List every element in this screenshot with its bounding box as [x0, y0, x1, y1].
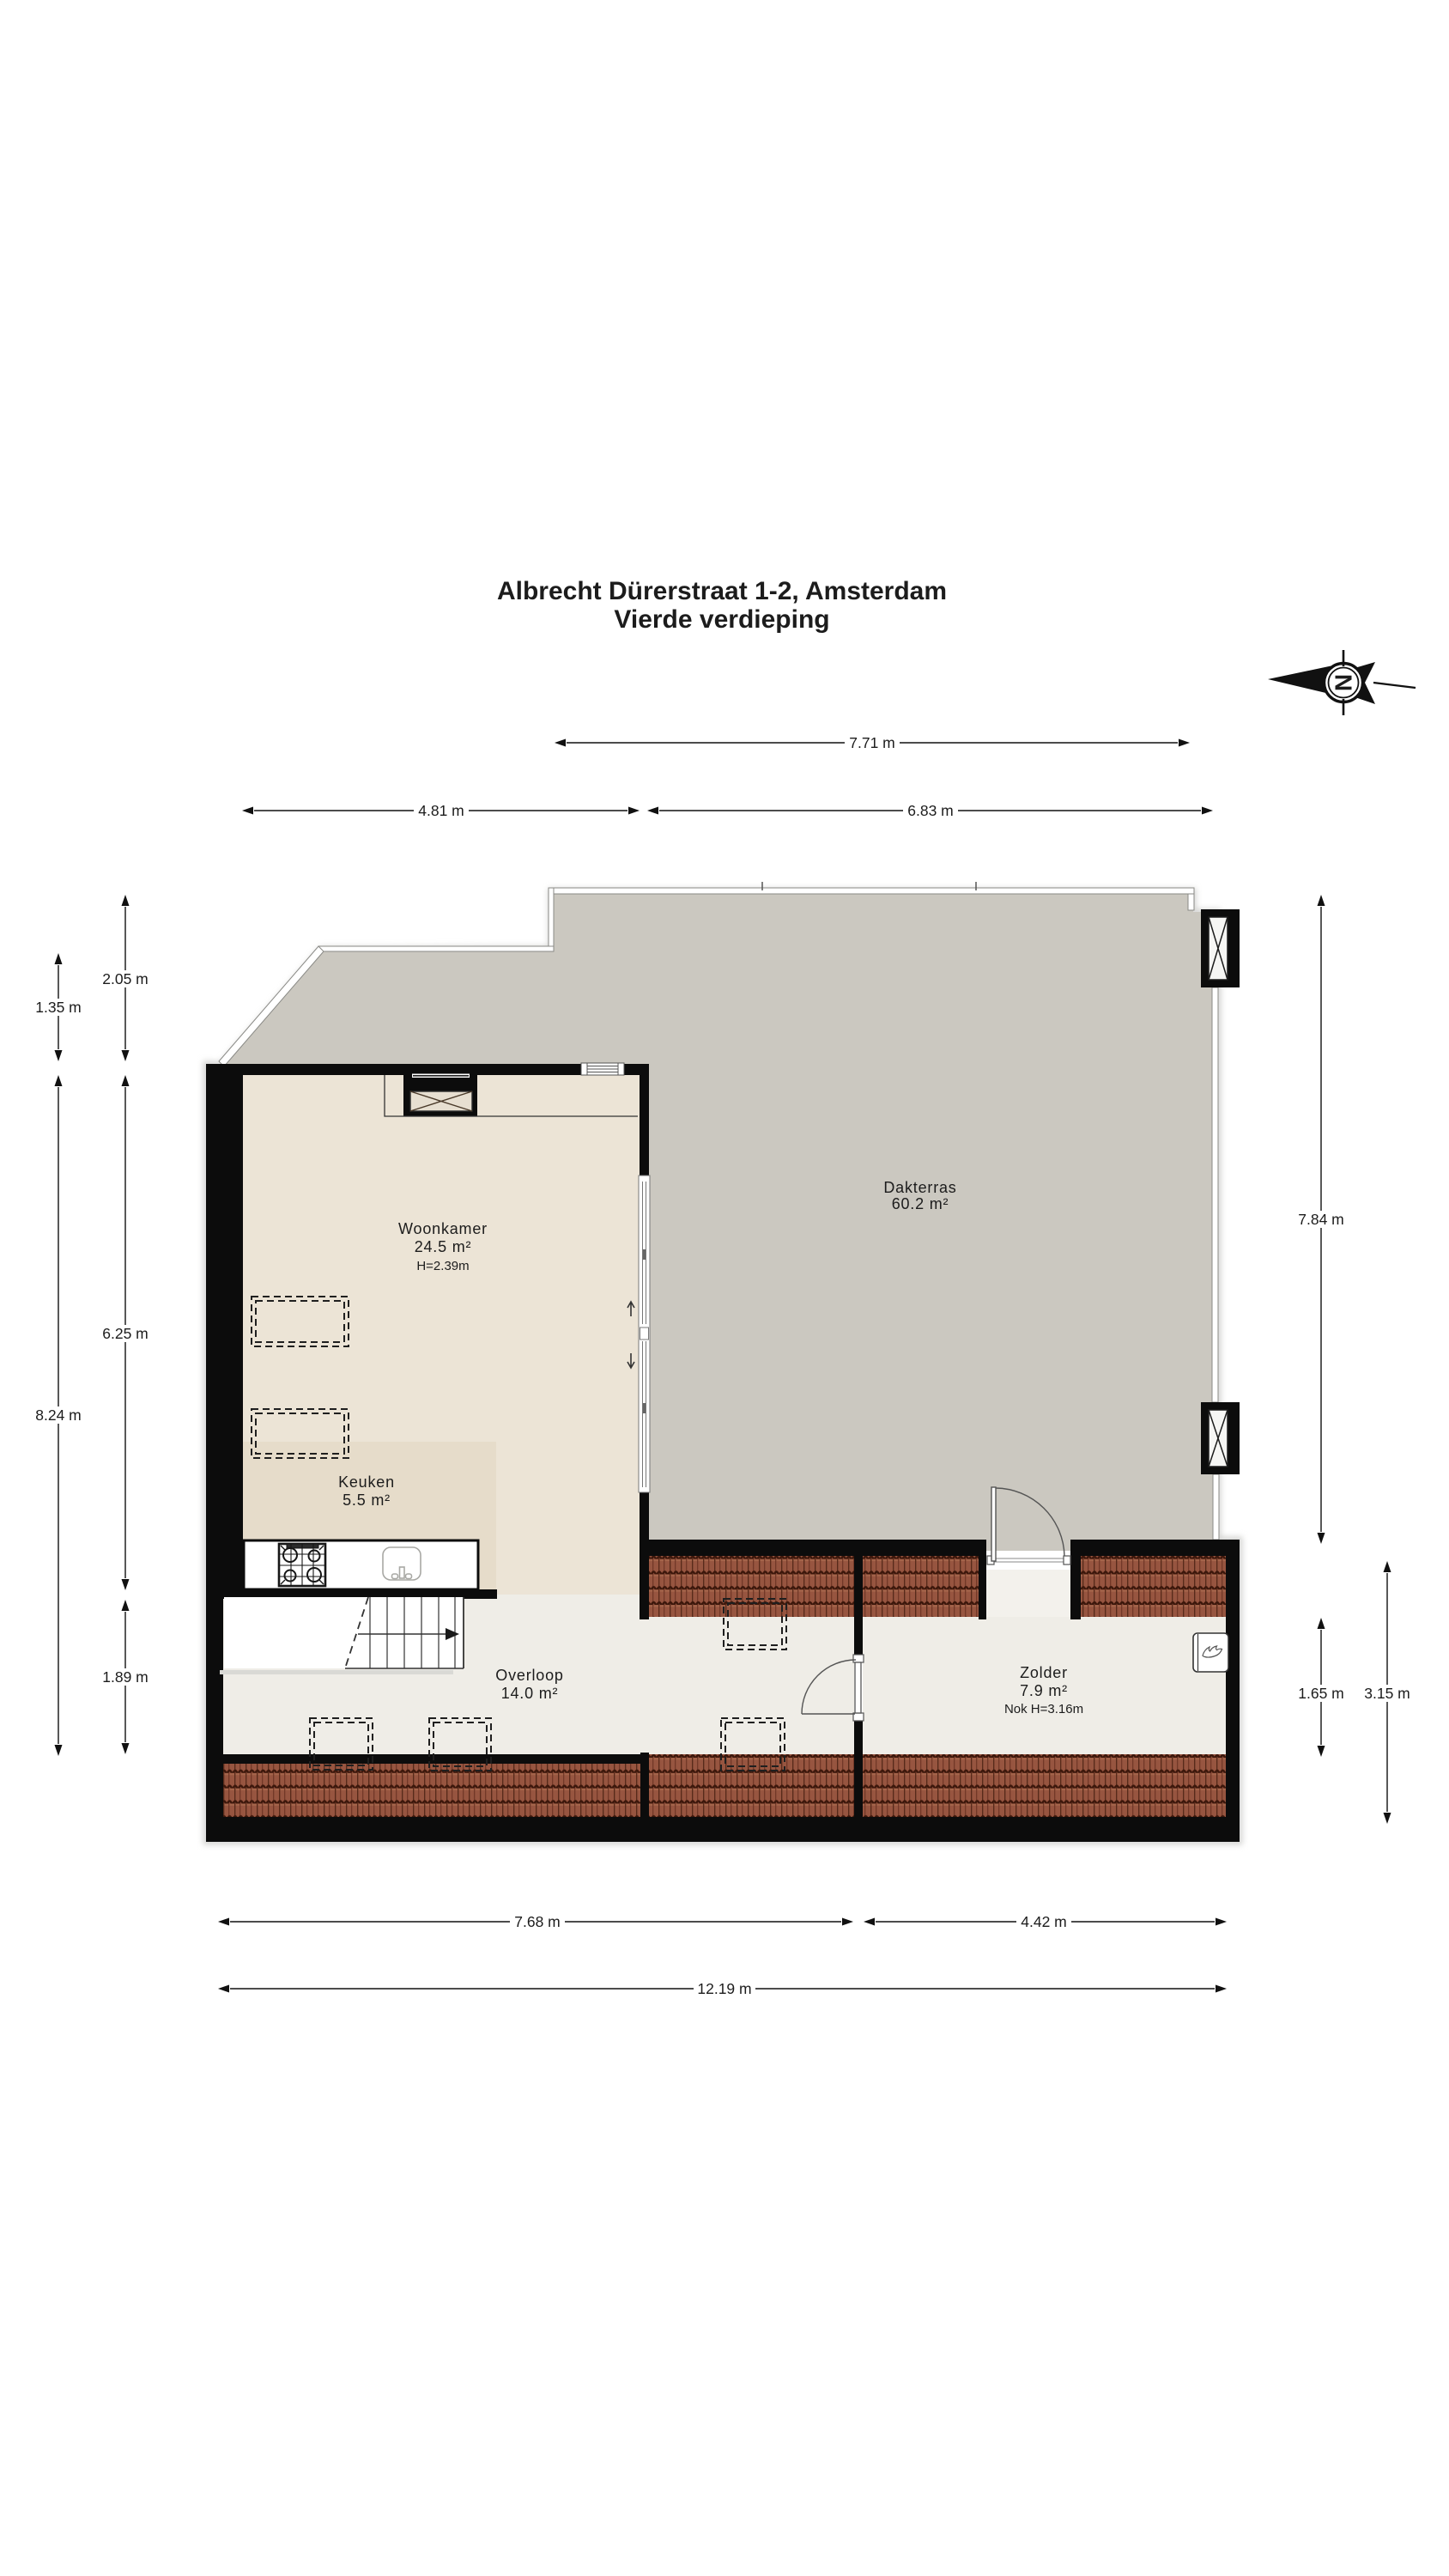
svg-text:24.5 m²: 24.5 m² [415, 1238, 472, 1255]
svg-text:7.9 m²: 7.9 m² [1020, 1682, 1068, 1699]
svg-text:2.05 m: 2.05 m [102, 970, 149, 987]
svg-text:6.25 m: 6.25 m [102, 1325, 149, 1342]
svg-text:Overloop: Overloop [495, 1667, 563, 1684]
svg-text:7.68 m: 7.68 m [514, 1913, 561, 1930]
svg-text:Zolder: Zolder [1020, 1664, 1068, 1681]
svg-text:4.81 m: 4.81 m [418, 802, 464, 819]
svg-text:Albrecht Dürerstraat 1-2, Amst: Albrecht Dürerstraat 1-2, Amsterdam [497, 577, 947, 605]
svg-text:1.65 m: 1.65 m [1298, 1685, 1344, 1702]
svg-text:12.19 m: 12.19 m [697, 1980, 751, 1997]
svg-text:Dakterras: Dakterras [883, 1179, 956, 1196]
svg-text:14.0 m²: 14.0 m² [501, 1685, 559, 1702]
svg-text:Nok H=3.16m: Nok H=3.16m [1004, 1702, 1083, 1716]
svg-text:3.15 m: 3.15 m [1364, 1685, 1410, 1702]
svg-text:60.2 m²: 60.2 m² [892, 1195, 949, 1212]
svg-text:4.42 m: 4.42 m [1021, 1913, 1067, 1930]
svg-text:H=2.39m: H=2.39m [416, 1259, 469, 1273]
svg-text:5.5 m²: 5.5 m² [343, 1492, 391, 1509]
svg-text:Keuken: Keuken [338, 1473, 395, 1491]
svg-text:1.89 m: 1.89 m [102, 1668, 149, 1686]
svg-text:7.71 m: 7.71 m [849, 734, 895, 751]
svg-text:7.84 m: 7.84 m [1298, 1211, 1344, 1228]
svg-text:1.35 m: 1.35 m [35, 999, 82, 1016]
svg-text:Vierde verdieping: Vierde verdieping [614, 605, 829, 634]
svg-text:8.24 m: 8.24 m [35, 1406, 82, 1424]
svg-text:N: N [1331, 674, 1357, 691]
svg-text:Woonkamer: Woonkamer [398, 1220, 488, 1237]
svg-text:6.83 m: 6.83 m [907, 802, 954, 819]
